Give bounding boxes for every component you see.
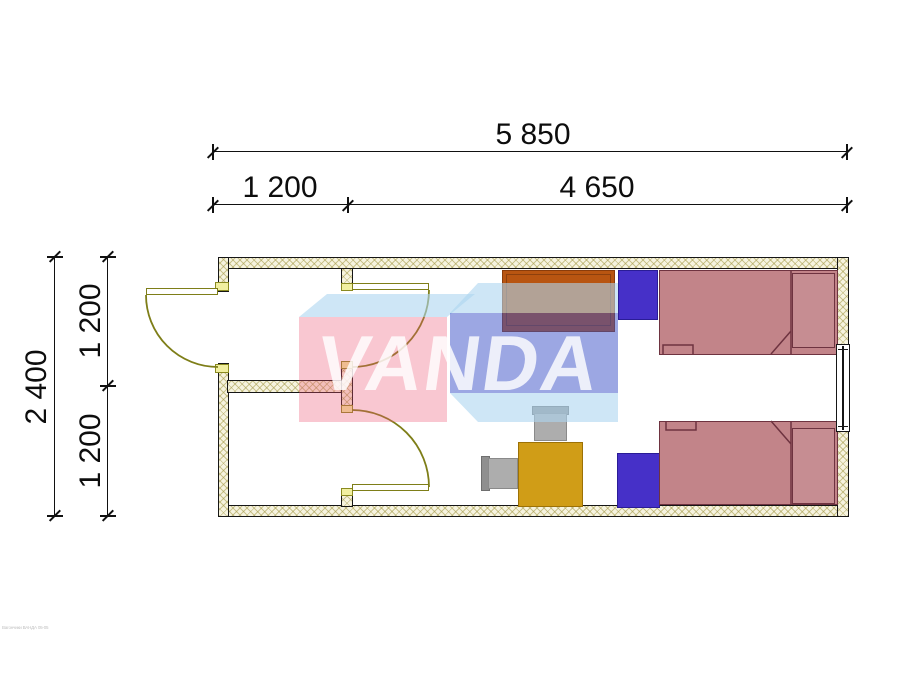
watermark-brand-text: VANDA <box>312 319 606 407</box>
nightstand-top <box>618 270 658 320</box>
pillow <box>792 273 835 348</box>
wall-right-upper <box>837 257 849 346</box>
dimension-label-room-width: 4 650 <box>559 171 634 205</box>
watermark-box-red-face <box>299 317 447 422</box>
chair-top <box>532 406 569 441</box>
interior-door-lower-swing-arc <box>352 410 429 487</box>
chair-left <box>481 456 518 491</box>
chair-seat <box>488 458 518 489</box>
window <box>836 344 850 432</box>
door-jamb <box>341 361 353 369</box>
interior-door-upper-leaf <box>352 283 429 290</box>
dimension-label-room-lower-depth: 1 200 <box>74 413 108 488</box>
bed-top <box>659 270 838 355</box>
wall-right-lower <box>837 431 849 517</box>
floor-plan-canvas: 5 850 1 200 4 650 2 400 1 200 1 200 <box>0 0 924 700</box>
pillow <box>792 428 835 504</box>
wall-top <box>218 257 849 269</box>
door-jamb <box>215 364 229 373</box>
nightstand-bottom <box>617 453 660 508</box>
wall-stub-top <box>341 268 353 284</box>
door-jamb <box>341 405 353 413</box>
window-frame-line <box>838 426 848 427</box>
window-frame-line <box>838 349 848 350</box>
dimension-label-total-width: 5 850 <box>495 118 570 152</box>
wall-partition <box>227 380 342 393</box>
dining-table <box>518 442 583 507</box>
window-glazing-line <box>842 346 844 430</box>
dimension-label-total-depth: 2 400 <box>20 349 54 424</box>
dimension-label-room-upper-depth: 1 200 <box>74 283 108 358</box>
exterior-door-swing-arc <box>146 295 218 367</box>
bed-bottom <box>659 421 838 505</box>
dimension-line-total-depth <box>54 257 55 517</box>
exterior-door-leaf <box>146 288 218 295</box>
dimension-label-entry-width: 1 200 <box>242 171 317 205</box>
credit-micro-text: Вагончики ВАНДА 05-05 <box>2 625 48 630</box>
watermark-box-top-left <box>299 294 475 317</box>
wardrobe <box>502 270 615 332</box>
chair-seat <box>534 413 567 441</box>
wardrobe-inner-outline <box>506 274 611 326</box>
interior-door-upper-swing-arc <box>352 290 429 367</box>
interior-door-lower-leaf <box>352 484 429 491</box>
